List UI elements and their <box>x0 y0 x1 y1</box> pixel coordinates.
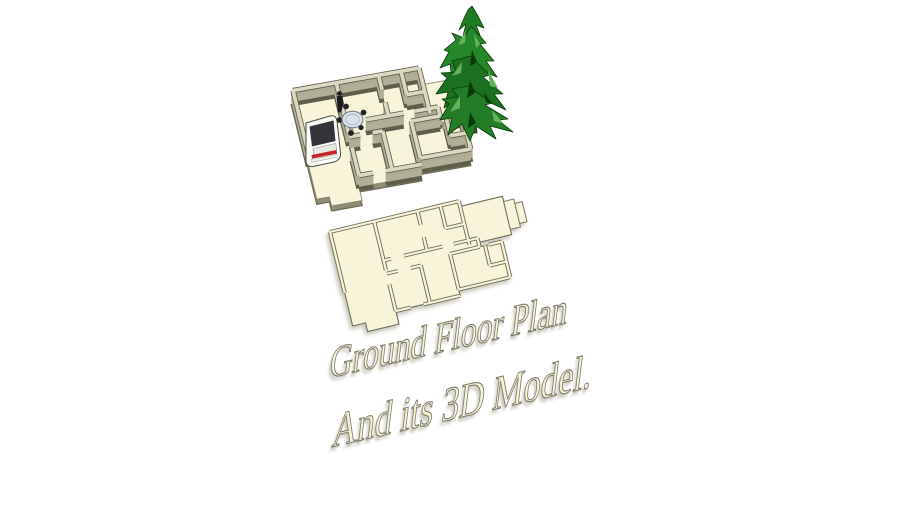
scene-svg <box>0 0 910 512</box>
car <box>306 116 341 167</box>
screenshot-canvas: Ground Floor Plan And its 3D Model. <box>0 0 910 512</box>
